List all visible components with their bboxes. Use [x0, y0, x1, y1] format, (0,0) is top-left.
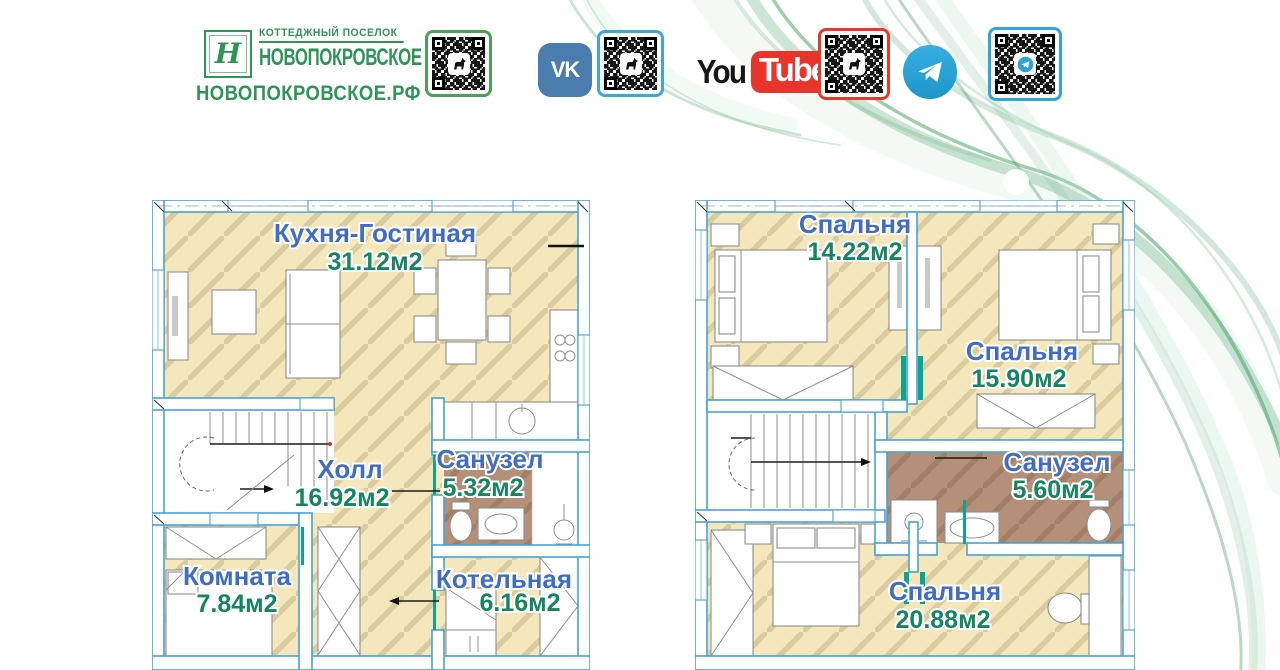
room-area: 14.22м2 — [808, 238, 903, 266]
brand-logo: КОТТЕДЖНЫЙ ПОСЕЛОК НОВОПОКРОВСКОЕ — [259, 27, 413, 72]
room-area: 6.16м2 — [479, 589, 560, 617]
qr-pattern — [825, 35, 883, 93]
qr-finder-icon — [1042, 34, 1055, 47]
room-door — [301, 527, 304, 565]
brand-name: НОВОПОКРОВСКОЕ — [259, 44, 367, 72]
qr-finder-icon — [432, 77, 445, 90]
qr-finder-icon — [995, 81, 1008, 94]
room-name: Спальня — [799, 209, 911, 239]
kitchen-counter-sink — [444, 402, 578, 440]
dog-logo-icon — [620, 53, 642, 75]
wardrobe — [166, 527, 266, 559]
pillow — [1083, 256, 1099, 292]
staircase-floor — [707, 412, 875, 510]
qr-finder-icon — [825, 80, 838, 93]
qr-code-green — [425, 30, 492, 97]
vk-label: VK — [551, 57, 580, 83]
brand-monogram: Н — [204, 30, 252, 78]
chair — [1048, 593, 1082, 623]
dog-logo-icon — [448, 53, 470, 75]
qr-code-telegram — [988, 27, 1062, 101]
wardrobe — [711, 530, 753, 656]
qr-finder-icon — [432, 37, 445, 50]
pillow — [817, 528, 855, 548]
telegram-icon[interactable] — [903, 45, 957, 99]
room-area: 16.92м2 — [295, 484, 390, 512]
chair — [414, 316, 436, 342]
vk-icon[interactable]: VK — [538, 43, 592, 97]
room-area: 20.88м2 — [896, 606, 991, 634]
room-name: Комната — [183, 561, 292, 591]
qr-finder-icon — [644, 37, 657, 50]
room-name: Спальня — [966, 336, 1078, 366]
toilet — [450, 511, 472, 541]
qr-pattern — [432, 37, 485, 90]
qr-finder-icon — [604, 37, 617, 50]
chair — [488, 316, 510, 342]
bathroom-door — [963, 500, 966, 544]
room-name: Кухня-Гостиная — [274, 218, 476, 248]
floor-plan-1: Кухня-Гостиная 31.12м2 Холл 16.92м2 Сану… — [152, 200, 590, 670]
chair-back — [1081, 594, 1089, 624]
qr-finder-icon — [870, 35, 883, 48]
pillow — [777, 528, 815, 548]
dog-logo-icon — [843, 53, 865, 75]
pillow — [719, 298, 735, 334]
hall-wardrobe — [318, 527, 360, 656]
room-area: 15.90м2 — [972, 365, 1067, 393]
boiler-door — [433, 590, 436, 630]
white-dot-decoration — [1003, 169, 1029, 195]
chair — [446, 342, 476, 364]
qr-finder-icon — [472, 37, 485, 50]
floor-plan-2: Спальня 14.22м2 Спальня 15.90м2 Санузел … — [695, 200, 1135, 670]
nightstand — [1093, 344, 1119, 364]
room-area: 7.84м2 — [196, 590, 277, 618]
brand-monogram-letter: Н — [215, 40, 241, 68]
qr-pattern — [995, 34, 1055, 94]
desk — [1089, 556, 1121, 660]
brand-tagline: КОТТЕДЖНЫЙ ПОСЕЛОК — [259, 27, 404, 43]
pillow — [1083, 296, 1099, 332]
qr-code-vk — [597, 30, 664, 97]
paper-plane-icon — [915, 57, 945, 87]
room-name: Санузел — [1004, 447, 1111, 477]
door-frame — [901, 356, 906, 400]
telegram-plane-icon — [1014, 53, 1036, 75]
room-area: 5.32м2 — [442, 474, 523, 502]
qr-finder-icon — [995, 34, 1008, 47]
wardrobe — [977, 394, 1095, 428]
coffee-table — [212, 290, 256, 334]
tv — [172, 296, 178, 336]
tv — [925, 258, 930, 308]
toilet — [1087, 509, 1111, 541]
youtube-logo[interactable]: You Tube — [694, 50, 835, 94]
room-name: Холл — [317, 454, 382, 484]
room-name: Спальня — [889, 576, 1001, 606]
nightstand — [1093, 224, 1119, 244]
nightstand — [711, 346, 739, 368]
dining-table — [438, 260, 486, 340]
nightstand — [745, 524, 771, 544]
chair — [488, 268, 510, 294]
qr-finder-icon — [825, 35, 838, 48]
youtube-you-text: You — [697, 53, 746, 91]
nightstand — [711, 224, 739, 246]
qr-finder-icon — [604, 77, 617, 90]
qr-code-youtube — [818, 28, 890, 100]
room-area: 5.60м2 — [1012, 476, 1093, 504]
door-frame — [918, 356, 923, 400]
room-name: Санузел — [437, 444, 544, 474]
brand-website: НОВОПОКРОВСКОЕ.РФ — [196, 82, 421, 106]
room-area: 31.12м2 — [328, 248, 423, 276]
pillow — [719, 256, 735, 292]
wardrobe — [713, 366, 853, 400]
qr-pattern — [604, 37, 657, 90]
toilet-tank — [452, 502, 470, 510]
